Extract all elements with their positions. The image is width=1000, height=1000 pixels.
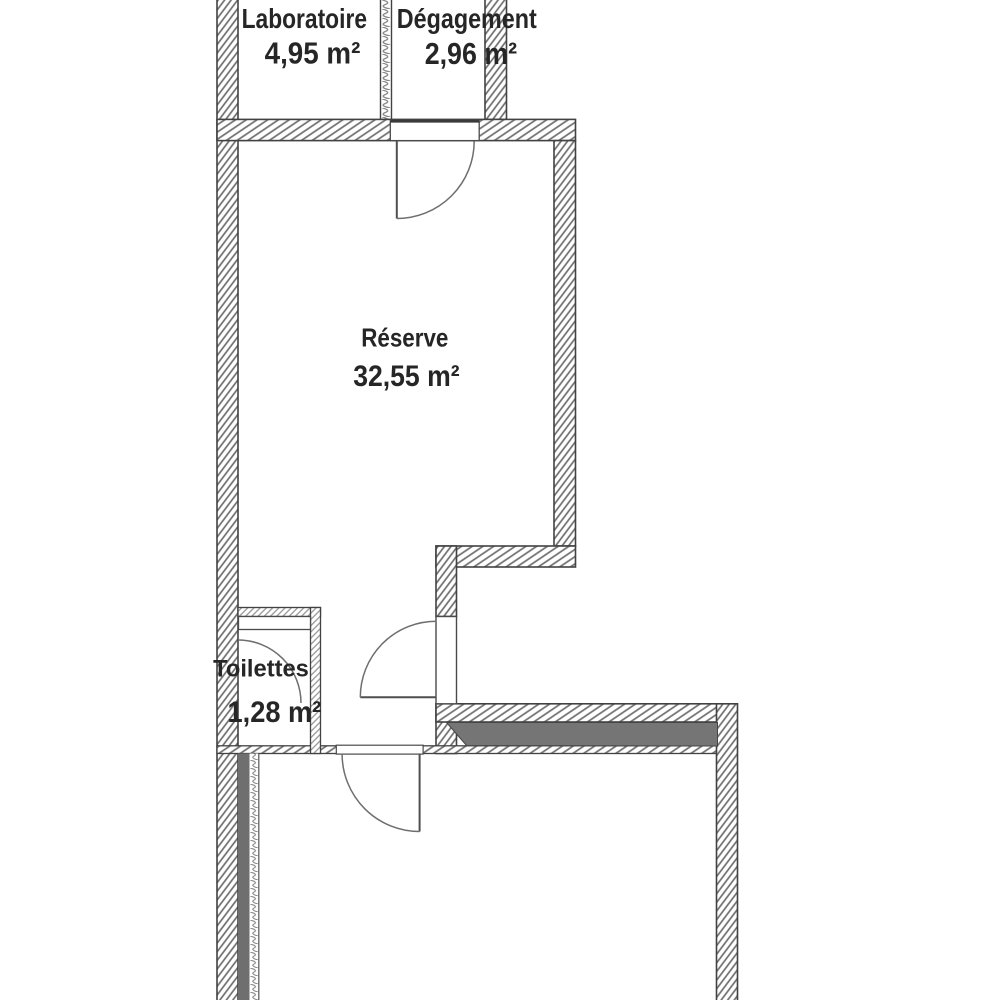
svg-text:1,28 m²: 1,28 m²	[228, 696, 322, 729]
svg-text:Réserve: Réserve	[361, 322, 448, 352]
svg-text:Dégagement: Dégagement	[397, 3, 537, 34]
svg-text:2,96 m²: 2,96 m²	[425, 37, 517, 71]
svg-text:Toilettes: Toilettes	[213, 655, 309, 682]
svg-text:4,95 m²: 4,95 m²	[265, 37, 361, 71]
svg-text:32,55 m²: 32,55 m²	[353, 360, 459, 393]
svg-text:Laboratoire: Laboratoire	[242, 3, 367, 34]
